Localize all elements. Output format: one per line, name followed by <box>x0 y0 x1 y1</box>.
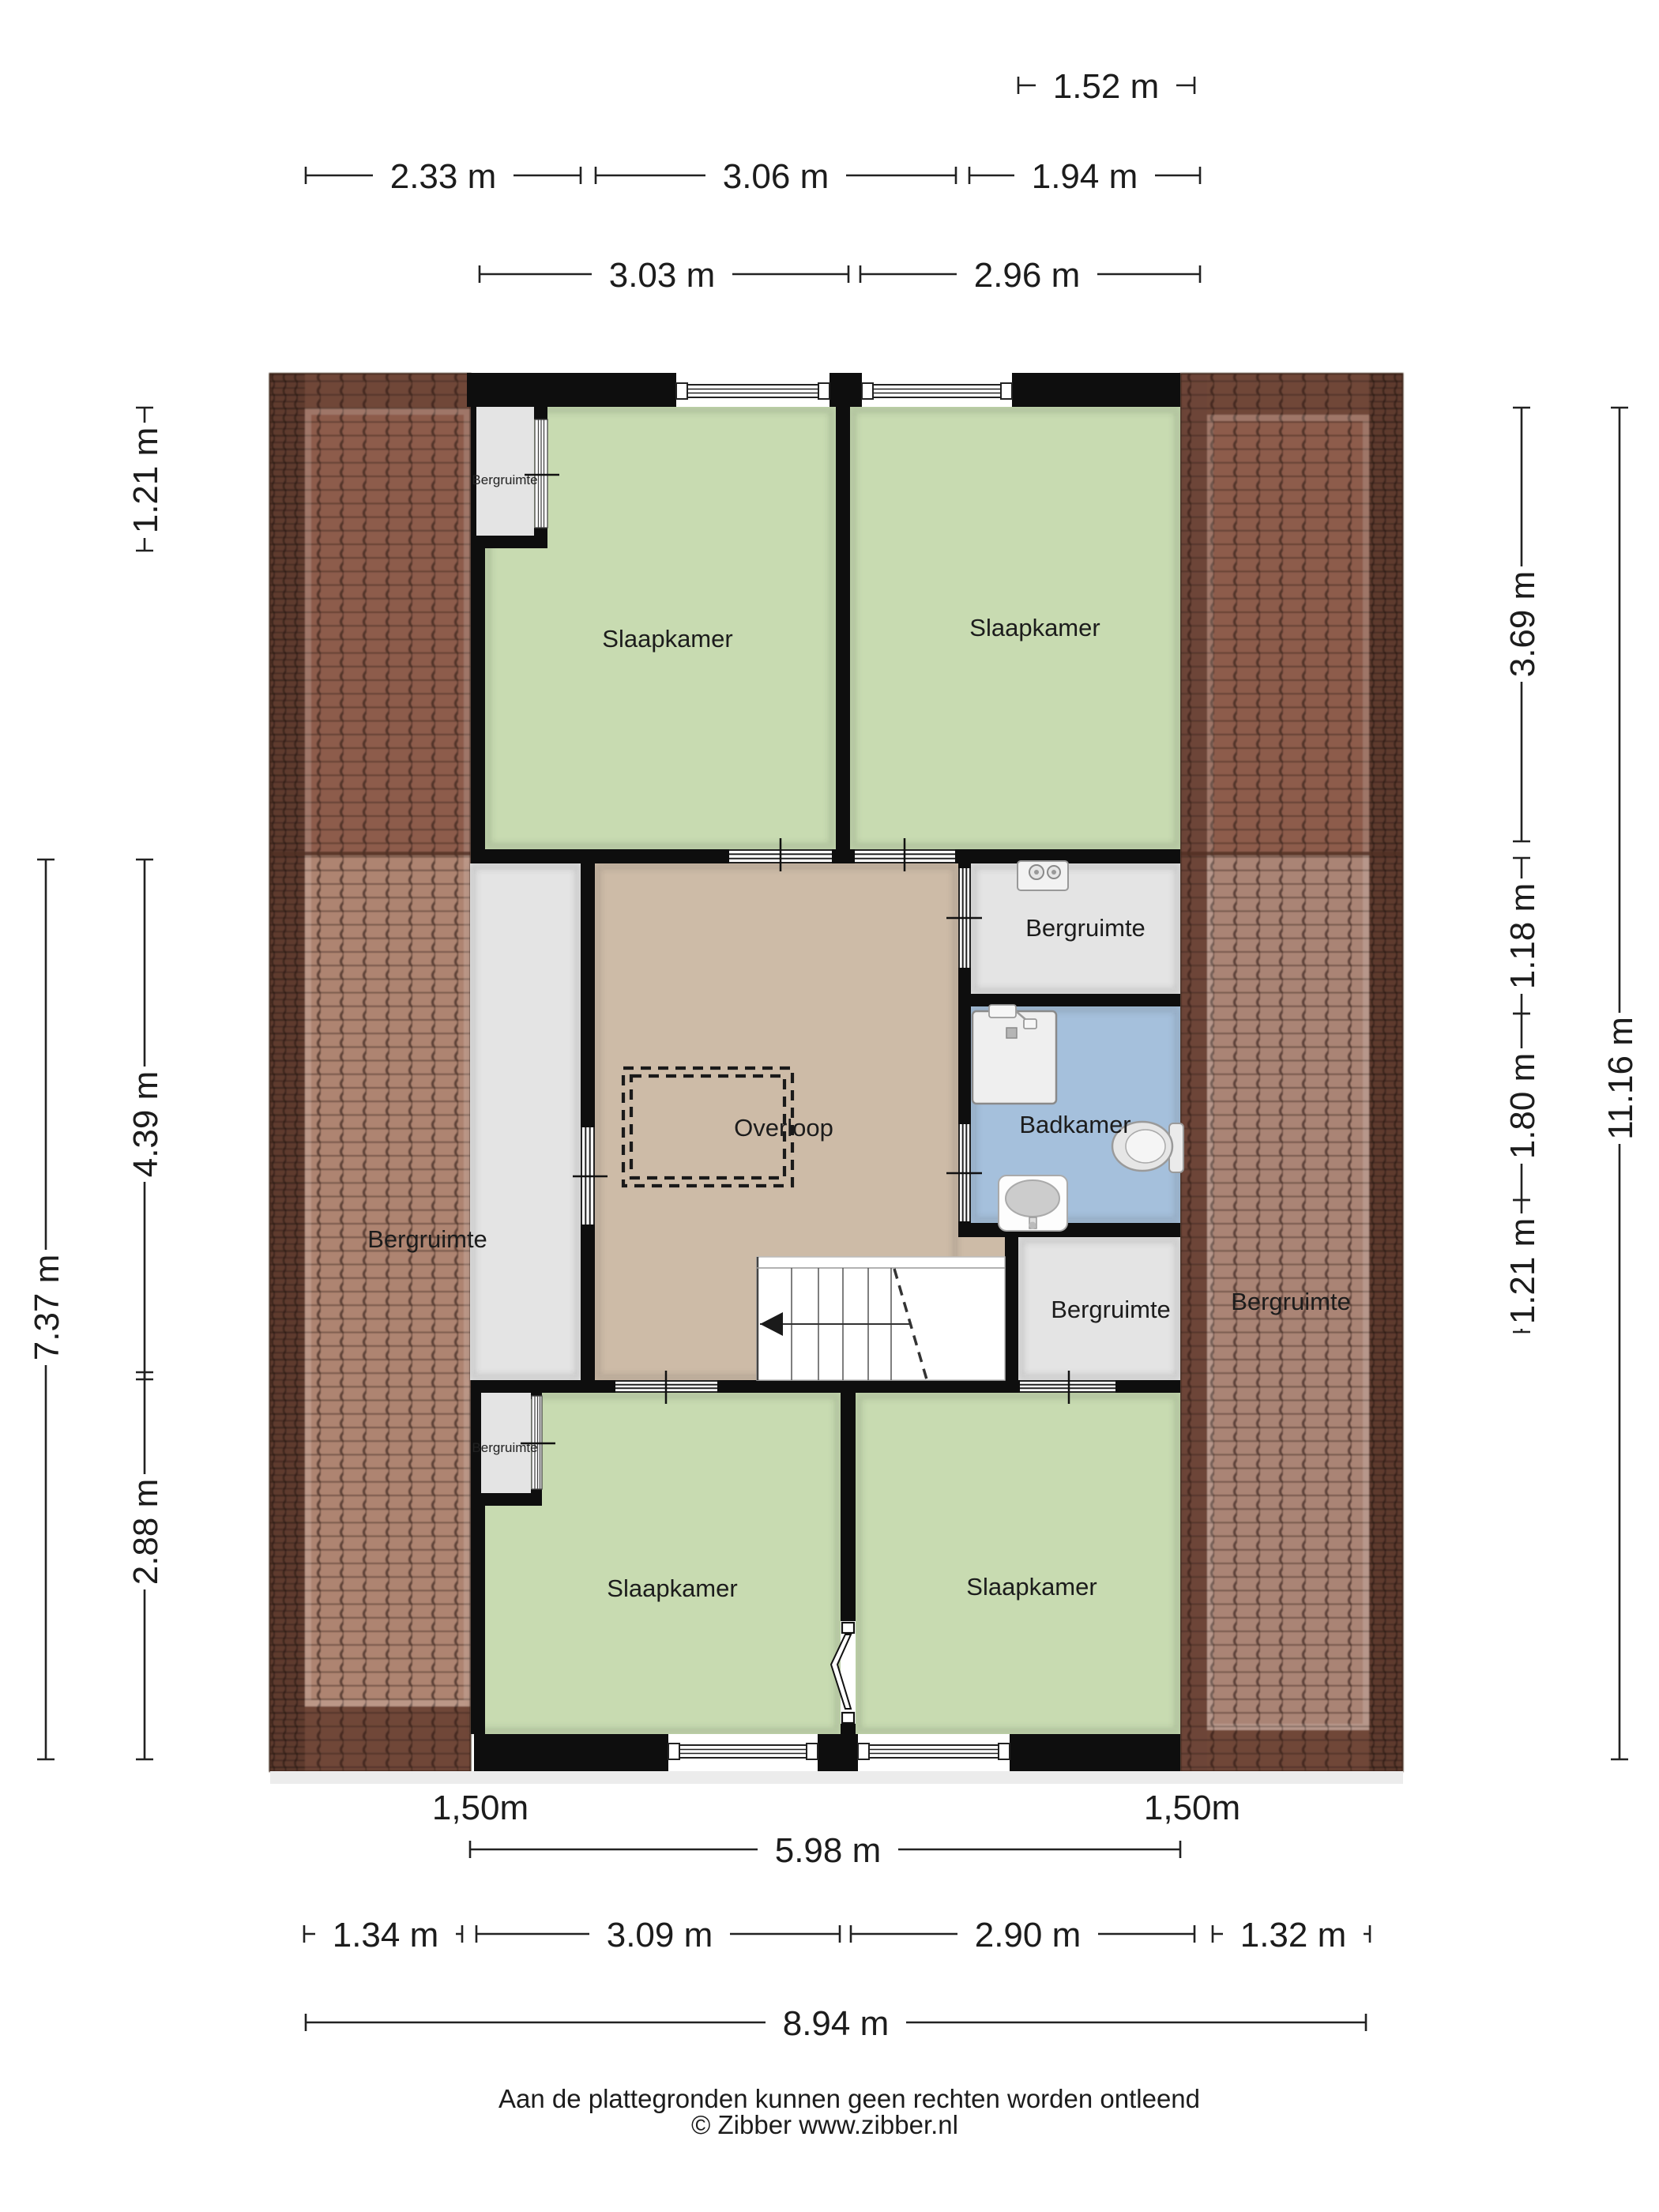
svg-text:1.34 m: 1.34 m <box>333 1916 439 1954</box>
svg-text:2.90 m: 2.90 m <box>975 1916 1082 1954</box>
svg-text:Bergruimte: Bergruimte <box>472 472 537 487</box>
svg-text:1.21 m: 1.21 m <box>126 427 165 534</box>
svg-text:© Zibber www.zibber.nl: © Zibber www.zibber.nl <box>691 2110 958 2139</box>
svg-text:Slaapkamer: Slaapkamer <box>966 1573 1097 1601</box>
svg-text:3.03 m: 3.03 m <box>609 256 716 295</box>
svg-text:3.06 m: 3.06 m <box>723 157 829 196</box>
svg-text:Bergruimte: Bergruimte <box>1025 914 1145 942</box>
svg-text:1.52 m: 1.52 m <box>1053 67 1160 106</box>
svg-text:Slaapkamer: Slaapkamer <box>969 614 1100 641</box>
svg-text:Slaapkamer: Slaapkamer <box>602 625 732 653</box>
svg-text:8.94 m: 8.94 m <box>783 2004 890 2043</box>
svg-text:1,50m: 1,50m <box>432 1789 529 1827</box>
svg-text:Overloop: Overloop <box>734 1114 833 1142</box>
svg-text:Badkamer: Badkamer <box>1019 1111 1130 1138</box>
svg-text:11.16 m: 11.16 m <box>1601 1017 1640 1140</box>
svg-text:7.37 m: 7.37 m <box>28 1255 66 1361</box>
svg-text:4.39 m: 4.39 m <box>126 1071 165 1178</box>
svg-text:Bergruimte: Bergruimte <box>1051 1296 1171 1323</box>
svg-text:1.80 m: 1.80 m <box>1503 1053 1542 1160</box>
svg-text:1.21 m: 1.21 m <box>1503 1218 1542 1325</box>
svg-text:Bergruimte: Bergruimte <box>472 1440 537 1455</box>
svg-text:Slaapkamer: Slaapkamer <box>607 1574 737 1602</box>
svg-text:3.09 m: 3.09 m <box>607 1916 713 1954</box>
svg-text:Bergruimte: Bergruimte <box>367 1225 487 1253</box>
svg-text:2.96 m: 2.96 m <box>974 256 1081 295</box>
svg-text:3.69 m: 3.69 m <box>1503 571 1542 678</box>
svg-text:5.98 m: 5.98 m <box>775 1831 882 1870</box>
svg-text:Aan de plattegronden kunnen ge: Aan de plattegronden kunnen geen rechten… <box>498 2084 1200 2113</box>
svg-text:1.18 m: 1.18 m <box>1503 883 1542 990</box>
svg-text:Bergruimte: Bergruimte <box>1231 1288 1351 1315</box>
svg-text:1.94 m: 1.94 m <box>1032 157 1138 196</box>
svg-text:1,50m: 1,50m <box>1144 1789 1240 1827</box>
svg-text:2.33 m: 2.33 m <box>390 157 497 196</box>
svg-text:1.32 m: 1.32 m <box>1240 1916 1347 1954</box>
svg-text:2.88 m: 2.88 m <box>126 1479 165 1586</box>
